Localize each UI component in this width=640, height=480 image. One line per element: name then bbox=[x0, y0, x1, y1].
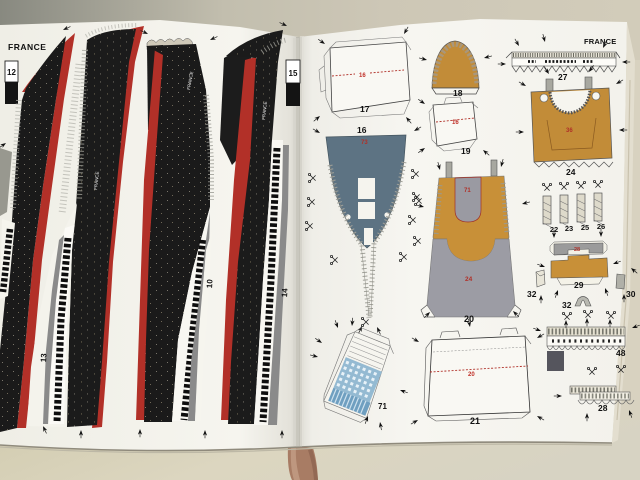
svg-text:23: 23 bbox=[565, 224, 573, 233]
svg-text:29: 29 bbox=[574, 280, 584, 290]
svg-text:71: 71 bbox=[378, 402, 387, 411]
svg-text:12: 12 bbox=[7, 68, 16, 77]
svg-text:16: 16 bbox=[357, 125, 367, 135]
svg-text:27: 27 bbox=[558, 72, 568, 82]
svg-text:48: 48 bbox=[616, 348, 626, 358]
svg-text:28: 28 bbox=[574, 247, 580, 253]
svg-text:FRANCE: FRANCE bbox=[8, 42, 46, 52]
svg-text:30: 30 bbox=[626, 289, 636, 299]
svg-text:24: 24 bbox=[566, 167, 576, 177]
svg-text:28: 28 bbox=[598, 403, 608, 413]
svg-text:32: 32 bbox=[562, 300, 572, 310]
svg-text:73: 73 bbox=[361, 140, 368, 146]
svg-text:36: 36 bbox=[566, 128, 573, 134]
svg-text:16: 16 bbox=[359, 73, 366, 79]
svg-text:10: 10 bbox=[205, 278, 215, 288]
svg-text:20: 20 bbox=[468, 372, 475, 378]
svg-text:FRANCE: FRANCE bbox=[584, 37, 616, 46]
svg-text:71: 71 bbox=[464, 188, 471, 194]
svg-text:17: 17 bbox=[360, 104, 370, 114]
svg-text:13: 13 bbox=[39, 353, 49, 363]
svg-text:19: 19 bbox=[461, 146, 471, 156]
svg-text:32: 32 bbox=[527, 289, 537, 299]
svg-text:14: 14 bbox=[280, 288, 290, 298]
svg-text:18: 18 bbox=[453, 88, 463, 98]
svg-text:15: 15 bbox=[289, 69, 298, 78]
svg-text:16: 16 bbox=[452, 120, 459, 126]
svg-text:25: 25 bbox=[581, 223, 589, 232]
svg-text:21: 21 bbox=[470, 416, 480, 426]
svg-text:24: 24 bbox=[465, 276, 473, 283]
